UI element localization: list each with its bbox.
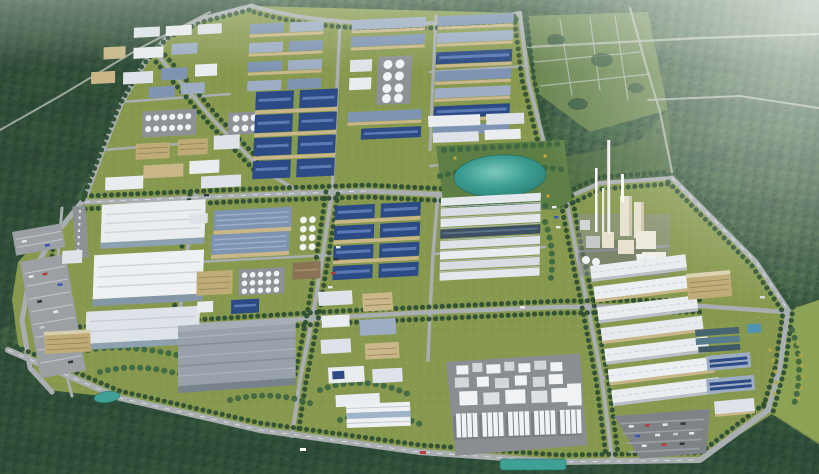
silo-strip — [238, 267, 284, 295]
tank-pad-nw — [228, 111, 258, 135]
parking-south-east — [614, 409, 712, 460]
industrial-park-scene: Aerial 3D rendering of a planned industr… — [0, 0, 819, 474]
office-complex-south — [346, 402, 411, 428]
aerial-render-image: Aerial 3D rendering of a planned industr… — [0, 0, 819, 474]
south-pond — [500, 459, 566, 470]
silo-plant — [446, 353, 587, 456]
treatment-pond — [747, 323, 762, 333]
silo-row-nw — [142, 109, 196, 138]
grey-warehouse — [178, 318, 296, 393]
campus-office — [44, 330, 91, 354]
